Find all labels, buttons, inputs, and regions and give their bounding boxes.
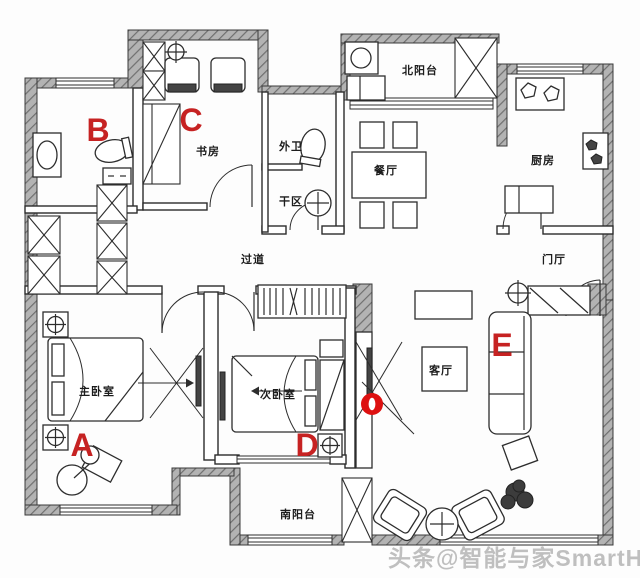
nightstand <box>320 340 343 357</box>
window-kitchen-top <box>517 64 583 74</box>
study-furniture <box>165 41 245 92</box>
wall <box>543 226 613 234</box>
side-table <box>502 436 537 470</box>
ceiling-light-icon <box>318 434 342 457</box>
wall <box>322 226 344 234</box>
floor-plan-canvas: 书房 外卫 干区 餐厅 北阳台 厨房 门厅 过道 主卧室 次卧室 南阳台 客厅 … <box>0 0 640 578</box>
window-south-balcony <box>248 535 332 545</box>
label-master-bedroom: 主卧室 <box>79 384 115 398</box>
marker-c: C <box>179 102 202 138</box>
floor-plan-drawing: 书房 外卫 干区 餐厅 北阳台 厨房 门厅 过道 主卧室 次卧室 南阳台 客厅 … <box>0 0 640 578</box>
pillow <box>52 344 64 376</box>
label-south-balcony: 南阳台 <box>280 507 316 521</box>
door-study <box>210 165 252 207</box>
marker-o <box>361 393 383 415</box>
wall <box>603 64 613 304</box>
balcony-cabinet <box>347 76 385 100</box>
ceiling-light-icon <box>43 312 68 337</box>
wall <box>258 30 268 92</box>
kitchen-counter <box>505 186 553 213</box>
marker-b: B <box>86 112 109 148</box>
wall <box>262 92 268 232</box>
ceiling-light-icon <box>43 425 68 450</box>
marker-e: E <box>491 327 512 363</box>
watermark-text: 头条@智能与家SmartHome <box>388 545 640 571</box>
wall <box>497 64 507 146</box>
closet-corridor <box>97 185 127 294</box>
door-master <box>162 292 203 333</box>
door-second-bedroom <box>215 292 254 331</box>
round-table-icon <box>426 508 458 540</box>
bath-shelf <box>103 168 131 184</box>
wall <box>143 203 207 210</box>
label-kitchen: 厨房 <box>531 153 555 167</box>
wall <box>133 88 143 210</box>
wall <box>262 86 347 94</box>
kitchen-fixtures <box>505 78 608 213</box>
hallway-cabinet <box>258 285 346 318</box>
label-hallway: 过道 <box>241 252 265 266</box>
wardrobe-sliding <box>320 360 344 430</box>
shoe-cabinet <box>528 286 590 315</box>
ceiling-light-icon <box>505 280 531 306</box>
pillow <box>305 360 316 390</box>
label-dining: 餐厅 <box>373 163 398 177</box>
label-study: 书房 <box>196 144 220 158</box>
armchair <box>450 488 507 542</box>
dining-chair <box>393 202 417 228</box>
pillow <box>305 396 316 426</box>
tv-master <box>196 356 201 406</box>
dining-chair <box>393 122 417 148</box>
label-north-balcony: 北阳台 <box>402 63 438 77</box>
wall <box>588 284 606 315</box>
bathroom-b-fixtures <box>33 133 133 184</box>
sink-icon <box>305 190 331 216</box>
wall <box>215 455 239 464</box>
window-bathroom-top <box>56 78 114 88</box>
wall <box>603 300 613 545</box>
dining-chair <box>360 122 384 148</box>
window-master-bottom <box>60 505 152 515</box>
wall <box>230 468 240 545</box>
chair-seat <box>214 84 242 92</box>
sight-lines-master <box>138 348 203 418</box>
pillow <box>52 382 64 415</box>
sink-basin-icon <box>37 141 57 169</box>
label-guest-wc: 外卫 <box>278 139 303 153</box>
marker-a: A <box>70 427 93 463</box>
armchair <box>371 487 428 543</box>
tv-second-bedroom <box>220 372 225 420</box>
column-north-balcony <box>455 38 497 98</box>
marker-d: D <box>295 427 318 463</box>
north-balcony-fixtures <box>345 42 385 100</box>
column-south-balcony <box>342 478 372 542</box>
wall <box>172 468 234 476</box>
foyer-fixtures <box>505 280 590 315</box>
wall <box>128 30 268 40</box>
sideboard <box>415 291 472 319</box>
plant-icon <box>501 480 533 509</box>
label-second-bedroom: 次卧室 <box>260 387 296 401</box>
wall <box>204 292 218 460</box>
wall <box>336 92 344 232</box>
label-foyer: 门厅 <box>542 252 566 266</box>
window-living-bottom <box>440 535 598 545</box>
dining-chair <box>360 202 384 228</box>
label-living-room: 客厅 <box>428 363 453 377</box>
chair-seat <box>168 84 196 92</box>
label-dry-area: 干区 <box>279 195 303 208</box>
